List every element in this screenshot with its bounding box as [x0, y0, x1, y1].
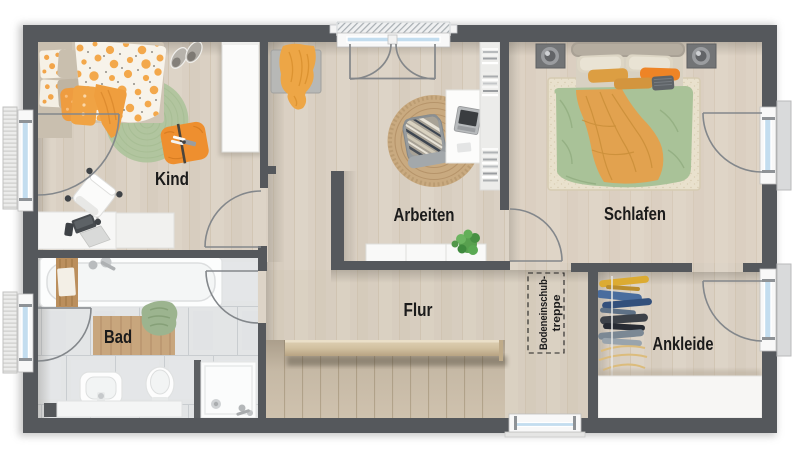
svg-text:Flur: Flur	[404, 300, 433, 320]
svg-text:Bad: Bad	[104, 327, 132, 347]
svg-text:Arbeiten: Arbeiten	[394, 205, 455, 225]
svg-text:Kind: Kind	[155, 169, 189, 189]
svg-text:Schlafen: Schlafen	[604, 204, 666, 224]
svg-text:treppe: treppe	[551, 295, 563, 332]
svg-text:Ankleide: Ankleide	[653, 334, 714, 354]
svg-text:Bodeneinschub-: Bodeneinschub-	[538, 276, 550, 350]
